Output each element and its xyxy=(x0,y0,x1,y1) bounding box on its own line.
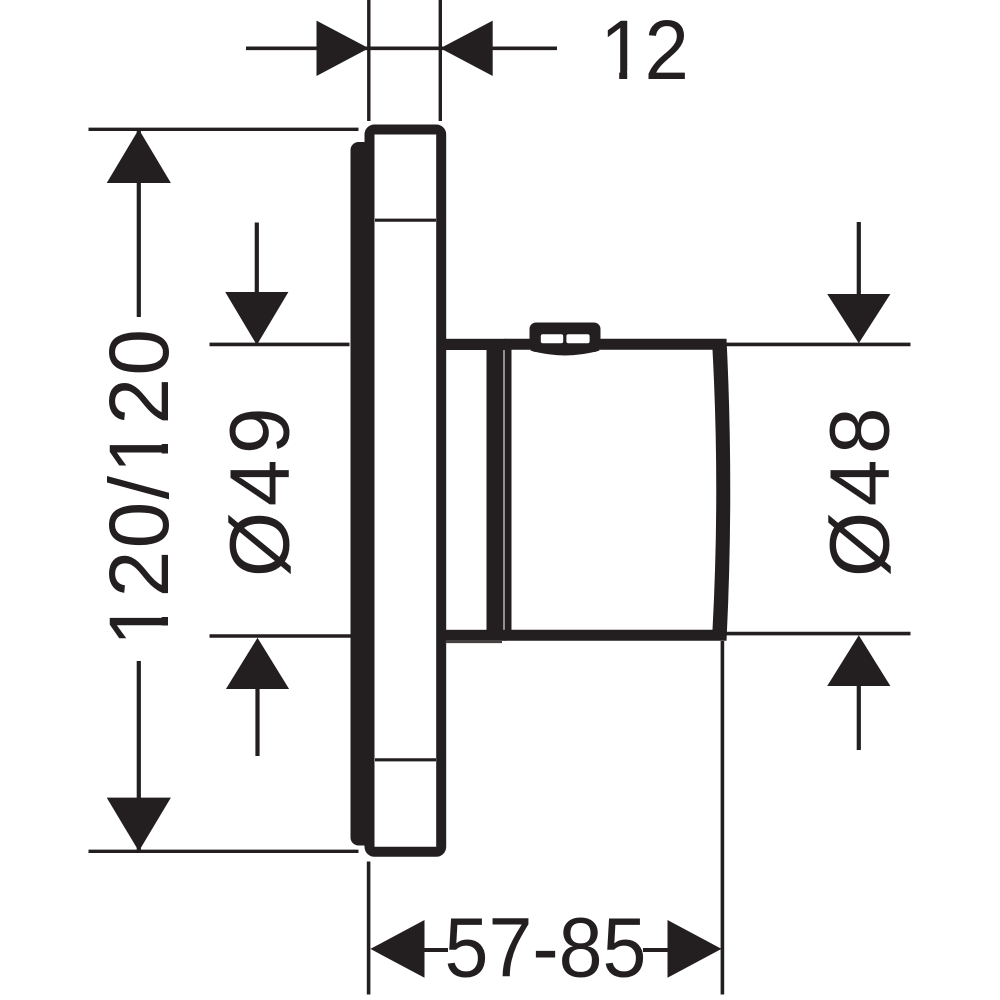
svg-text:Ø48: Ø48 xyxy=(813,402,907,577)
svg-text:120/120: 120/120 xyxy=(92,327,186,647)
svg-text:12: 12 xyxy=(600,4,689,97)
svg-text:Ø49: Ø49 xyxy=(213,402,307,577)
svg-text:57-85: 57-85 xyxy=(445,901,647,995)
